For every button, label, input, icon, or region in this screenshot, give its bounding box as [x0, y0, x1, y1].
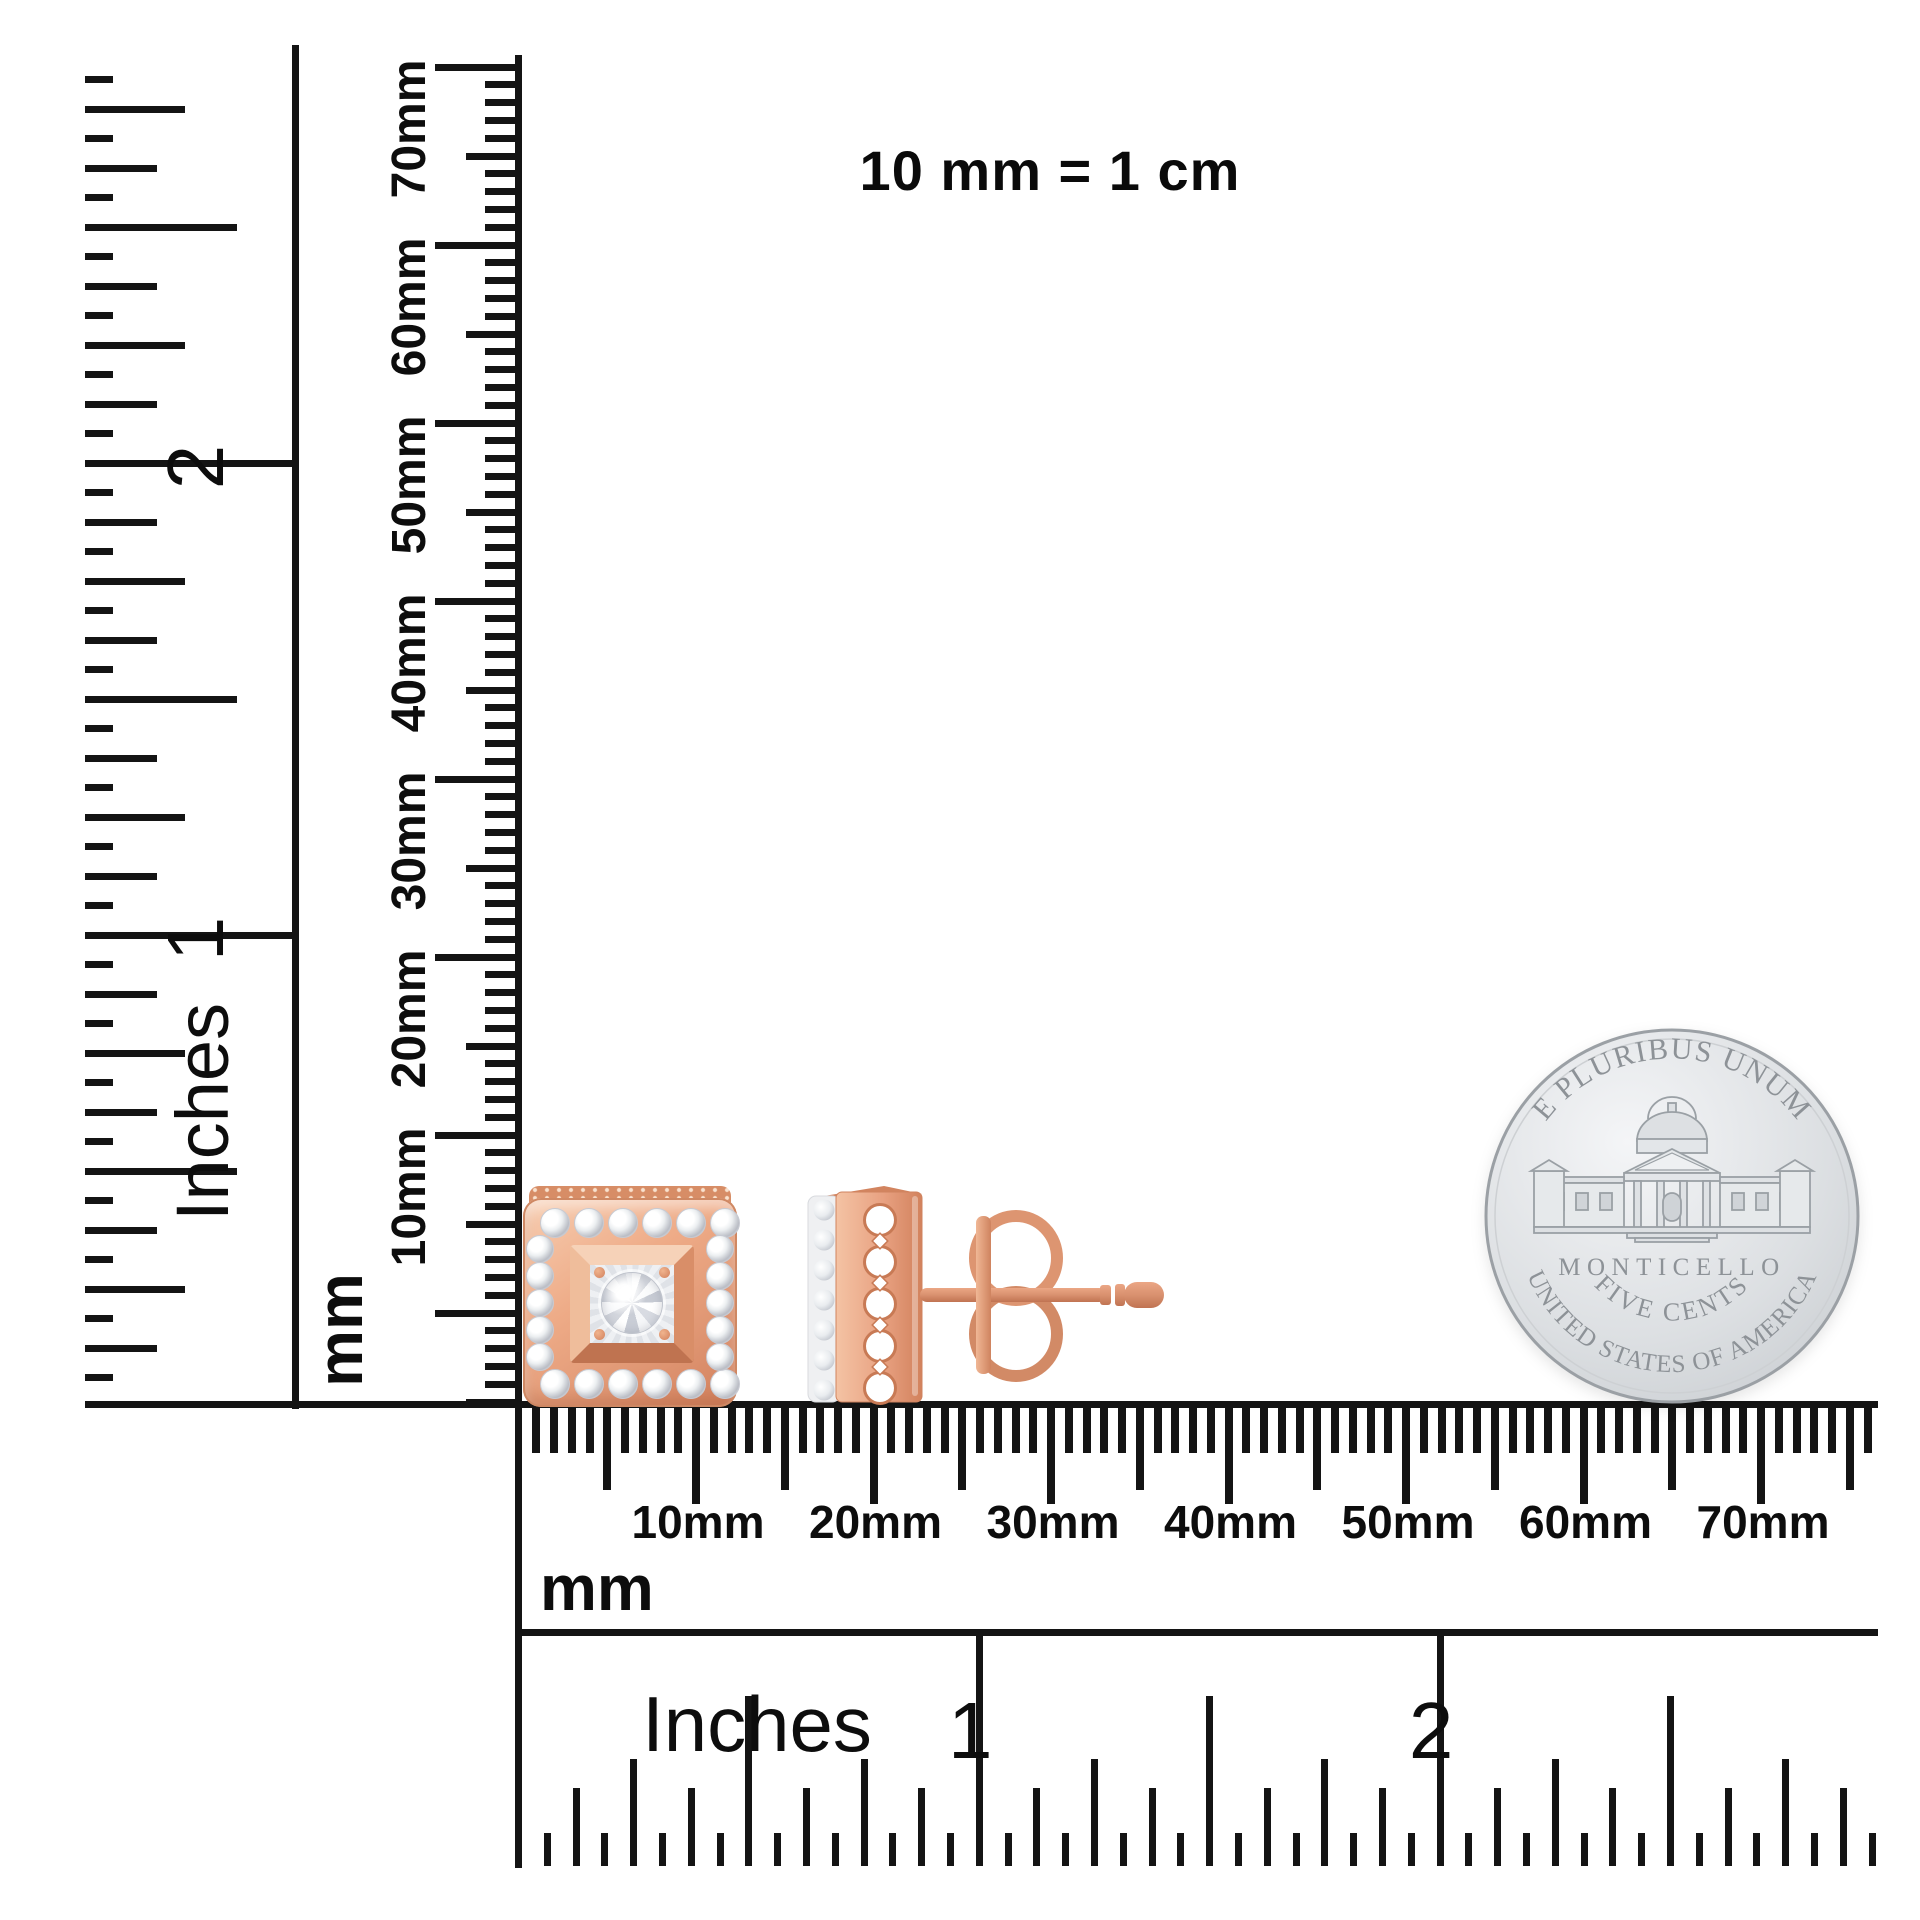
tick [85, 1227, 157, 1234]
diamond-stone [526, 1262, 554, 1290]
tick [586, 1408, 594, 1453]
jewelry-sizing-chart: 10 mm = 1 cm 12 10mm20mm30mm40mm50mm60mm… [0, 0, 1920, 1920]
left-inch-ruler-edge [292, 45, 299, 1409]
diamond-stone [608, 1208, 638, 1238]
mm-value-label: 40mm [386, 594, 434, 733]
tick [1189, 1408, 1197, 1453]
tick [85, 666, 113, 673]
tick [1757, 1408, 1765, 1504]
tick [485, 615, 522, 622]
tick [1402, 1408, 1410, 1504]
tick [435, 954, 522, 961]
tick [692, 1408, 700, 1504]
tick [550, 1408, 558, 1453]
prong [659, 1267, 670, 1278]
prong [594, 1329, 605, 1340]
tick [466, 865, 522, 872]
tick [688, 1788, 695, 1866]
tick [85, 725, 113, 732]
tick [85, 1079, 113, 1086]
tick [1242, 1408, 1250, 1453]
tick [1149, 1788, 1156, 1866]
mm-value-label: 10mm [386, 1128, 434, 1267]
tick [1033, 1788, 1040, 1866]
tick [1811, 1833, 1818, 1866]
tick [85, 902, 113, 909]
tick [1455, 1408, 1463, 1453]
tick [85, 1020, 113, 1027]
tick [1580, 1408, 1588, 1504]
diamond-stone [706, 1235, 734, 1263]
tick [1420, 1408, 1428, 1453]
tick [1091, 1759, 1098, 1866]
diamond-stone [526, 1289, 554, 1317]
tick [1810, 1408, 1818, 1453]
tick [85, 312, 113, 319]
tick [485, 1256, 522, 1263]
tick [1846, 1408, 1854, 1490]
tick [466, 331, 522, 338]
tick [435, 776, 522, 783]
tick [85, 1138, 113, 1145]
tick [466, 687, 522, 694]
tick [1696, 1833, 1703, 1866]
tick [603, 1408, 611, 1490]
diamond-stone [540, 1369, 570, 1399]
tick [435, 598, 522, 605]
inch-number-label: 1 [156, 917, 236, 962]
tick [1753, 1833, 1760, 1866]
tick [1235, 1833, 1242, 1866]
tick [485, 793, 522, 800]
stud-earring-front-view [523, 1186, 737, 1407]
tick [1840, 1788, 1847, 1866]
tick [85, 76, 113, 83]
mm-value-label: 20mm [809, 1499, 942, 1545]
tick [485, 1238, 522, 1245]
tick [85, 1315, 113, 1322]
tick [1739, 1408, 1747, 1453]
prong [659, 1329, 670, 1340]
tick [466, 1399, 522, 1406]
diamond-stone [706, 1343, 734, 1371]
mm-value-label: 10mm [632, 1499, 765, 1545]
tick [1668, 1408, 1676, 1490]
diamond-stone [526, 1343, 554, 1371]
tick [1869, 1833, 1876, 1866]
diamond-stone [608, 1369, 638, 1399]
nickel-coin: E PLURIBUS UNUM MONTICELLO FIVE CENTS UN… [1477, 1021, 1867, 1411]
tick [1686, 1408, 1694, 1453]
tick [85, 578, 185, 585]
tick [485, 1149, 522, 1156]
tick [85, 519, 157, 526]
tick [639, 1408, 647, 1453]
mm-value-label: 60mm [1519, 1499, 1652, 1545]
tick [485, 1203, 522, 1210]
tick [1177, 1833, 1184, 1866]
tick [1264, 1788, 1271, 1866]
diamond-stone [706, 1289, 734, 1317]
inch-number-label: 1 [948, 1691, 993, 1771]
tick [85, 371, 113, 378]
tick [1296, 1408, 1304, 1453]
diamond-stone [710, 1208, 740, 1238]
tick [485, 1007, 522, 1014]
tick [85, 548, 113, 555]
tick [85, 1197, 113, 1204]
tick [657, 1408, 665, 1453]
tick [1633, 1408, 1641, 1453]
tick [85, 1256, 113, 1263]
tick [1581, 1833, 1588, 1866]
tick [1544, 1408, 1552, 1453]
butterfly-bar [976, 1216, 991, 1374]
tick [85, 961, 113, 968]
tick [861, 1759, 868, 1866]
tick [85, 814, 185, 821]
tick [1293, 1833, 1300, 1866]
inch-number-label: 2 [156, 445, 236, 490]
mm-value-label: 60mm [386, 238, 434, 377]
earring-side-body [808, 1186, 922, 1404]
tick [485, 580, 522, 587]
tick [485, 1274, 522, 1281]
tick [485, 313, 522, 320]
tick [745, 1408, 753, 1453]
tick [435, 420, 522, 427]
tick [85, 1374, 113, 1381]
diamond-stone [642, 1369, 672, 1399]
tick [1509, 1408, 1517, 1453]
tick [710, 1408, 718, 1453]
diamond-stone [710, 1369, 740, 1399]
tick [85, 489, 113, 496]
tick [485, 81, 522, 88]
scale-equivalence-note: 10 mm = 1 cm [820, 138, 1280, 203]
mm-value-label: 40mm [1164, 1499, 1297, 1545]
tick [85, 194, 113, 201]
tick [485, 99, 522, 106]
tick [485, 366, 522, 373]
tick [659, 1833, 666, 1866]
tick [485, 1381, 522, 1388]
tick [485, 811, 522, 818]
mm-value-label: 30mm [987, 1499, 1120, 1545]
left-inches-unit-label: Inches [166, 1003, 240, 1221]
tick [485, 277, 522, 284]
tick [466, 509, 522, 516]
tick [485, 1292, 522, 1299]
tick [85, 873, 157, 880]
diamond-stone [642, 1208, 672, 1238]
mm-value-label: 30mm [386, 772, 434, 911]
tick [1775, 1408, 1783, 1453]
center-diamond [601, 1272, 663, 1334]
tick [832, 1833, 839, 1866]
tick [1465, 1833, 1472, 1866]
tick [485, 117, 522, 124]
tick [485, 1078, 522, 1085]
tick [1120, 1833, 1127, 1866]
tick [1523, 1833, 1530, 1866]
tick [1313, 1408, 1321, 1490]
tick [435, 1310, 522, 1317]
tick [485, 722, 522, 729]
tick [85, 165, 157, 172]
tick [763, 1408, 771, 1453]
tick [485, 188, 522, 195]
mm-value-label: 50mm [386, 416, 434, 555]
tick [958, 1408, 966, 1490]
tick [630, 1759, 637, 1866]
tick [85, 224, 237, 231]
tick [1609, 1788, 1616, 1866]
tick [485, 562, 522, 569]
coin-building-label: MONTICELLO [1558, 1254, 1785, 1281]
mm-value-label: 20mm [386, 950, 434, 1089]
tick [485, 348, 522, 355]
tick [1651, 1408, 1659, 1453]
tick [485, 526, 522, 533]
tick [485, 384, 522, 391]
tick [485, 1096, 522, 1103]
tick [85, 637, 157, 644]
mm-value-label: 70mm [386, 60, 434, 199]
tick [889, 1833, 896, 1866]
tick [85, 1109, 157, 1116]
tick [774, 1833, 781, 1866]
tick [485, 295, 522, 302]
tick [485, 135, 522, 142]
tick [485, 918, 522, 925]
tick [1725, 1788, 1732, 1866]
mm-value-label: 70mm [1697, 1499, 1830, 1545]
tick [485, 1363, 522, 1370]
tick [485, 1167, 522, 1174]
tick [485, 882, 522, 889]
tick [1615, 1408, 1623, 1453]
tick [485, 936, 522, 943]
tick [85, 784, 113, 791]
diamond-stone [706, 1316, 734, 1344]
tick [485, 633, 522, 640]
tick [1136, 1408, 1144, 1490]
tick [485, 971, 522, 978]
tick [717, 1833, 724, 1866]
tick [485, 829, 522, 836]
tick [1722, 1408, 1730, 1453]
tick [621, 1408, 629, 1453]
tick [85, 430, 113, 437]
tick [1379, 1788, 1386, 1866]
tick [947, 1833, 954, 1866]
tick [1350, 1833, 1357, 1866]
tick [85, 342, 185, 349]
tick [85, 607, 113, 614]
tick [485, 1345, 522, 1352]
tick [1062, 1833, 1069, 1866]
tick [918, 1788, 925, 1866]
tick [1260, 1408, 1268, 1453]
tick [485, 491, 522, 498]
diamond-stone [526, 1235, 554, 1263]
tick [85, 253, 113, 260]
tick [1207, 1408, 1215, 1453]
tick [1047, 1408, 1055, 1504]
tick [1526, 1408, 1534, 1453]
tick [1793, 1408, 1801, 1453]
tick [1491, 1408, 1499, 1490]
diamond-stone [676, 1369, 706, 1399]
tick [1782, 1759, 1789, 1866]
tick [485, 224, 522, 231]
tick [485, 989, 522, 996]
tick [1225, 1408, 1233, 1504]
tick [85, 1345, 157, 1352]
tick [485, 704, 522, 711]
tick [485, 1114, 522, 1121]
tick [1005, 1833, 1012, 1866]
tick [85, 135, 113, 142]
tick [485, 170, 522, 177]
tick [485, 740, 522, 747]
tick [85, 696, 237, 703]
tick [728, 1408, 736, 1453]
tick [485, 1327, 522, 1334]
diamond-stone [706, 1262, 734, 1290]
tick [485, 259, 522, 266]
tick [485, 473, 522, 480]
tick [485, 1060, 522, 1067]
tick [435, 242, 522, 249]
tick [485, 402, 522, 409]
tick [1597, 1408, 1605, 1453]
diamond-stone [574, 1369, 604, 1399]
tick [1367, 1408, 1375, 1453]
tick [1473, 1408, 1481, 1453]
tick [1494, 1788, 1501, 1866]
tick [674, 1408, 682, 1453]
tick [568, 1408, 576, 1453]
tick [485, 847, 522, 854]
bottom-inches-unit-label: Inches [642, 1685, 872, 1763]
tick [573, 1788, 580, 1866]
tick [485, 758, 522, 765]
tick [1562, 1408, 1570, 1453]
tick [485, 206, 522, 213]
diamond-stone [526, 1316, 554, 1344]
tick [485, 669, 522, 676]
stud-earring-side-view [800, 1180, 1180, 1420]
tick [85, 401, 157, 408]
tick [1278, 1408, 1286, 1453]
tick [466, 153, 522, 160]
tick [85, 755, 157, 762]
vertical-mm-unit-label: mm [308, 1273, 372, 1387]
mm-value-label: 50mm [1342, 1499, 1475, 1545]
tick [85, 1286, 185, 1293]
tick [803, 1788, 810, 1866]
bottom-inch-ruler-edge [515, 1629, 1878, 1636]
diamond-stone [574, 1208, 604, 1238]
tick [435, 1132, 522, 1139]
tick [1704, 1408, 1712, 1453]
tick [485, 651, 522, 658]
tick [1438, 1408, 1446, 1453]
tick [870, 1408, 878, 1504]
tick [485, 455, 522, 462]
tick [1384, 1408, 1392, 1453]
tick [435, 64, 522, 71]
tick [85, 991, 157, 998]
tick [1864, 1408, 1872, 1453]
tick [1667, 1696, 1674, 1866]
tick [1206, 1696, 1213, 1866]
tick [1408, 1833, 1415, 1866]
tick [485, 437, 522, 444]
tick [1552, 1759, 1559, 1866]
shared-zero-edge [515, 55, 522, 1868]
tick [485, 900, 522, 907]
diamond-stone [540, 1208, 570, 1238]
tick [544, 1833, 551, 1866]
tick [1638, 1833, 1645, 1866]
tick [601, 1833, 608, 1866]
tick [1828, 1408, 1836, 1453]
tick [485, 1025, 522, 1032]
tick [85, 283, 157, 290]
tick [781, 1408, 789, 1490]
tick [532, 1408, 540, 1453]
prong [594, 1267, 605, 1278]
tick [485, 544, 522, 551]
tick [1321, 1759, 1328, 1866]
tick [85, 106, 185, 113]
tick [1331, 1408, 1339, 1453]
tick [85, 843, 113, 850]
tick [485, 1185, 522, 1192]
tick [466, 1221, 522, 1228]
tick [466, 1043, 522, 1050]
tick [1349, 1408, 1357, 1453]
inch-number-label: 2 [1409, 1691, 1454, 1771]
bottom-mm-unit-label: mm [540, 1556, 654, 1620]
diamond-stone [676, 1208, 706, 1238]
earring-center-bezel [570, 1245, 694, 1363]
